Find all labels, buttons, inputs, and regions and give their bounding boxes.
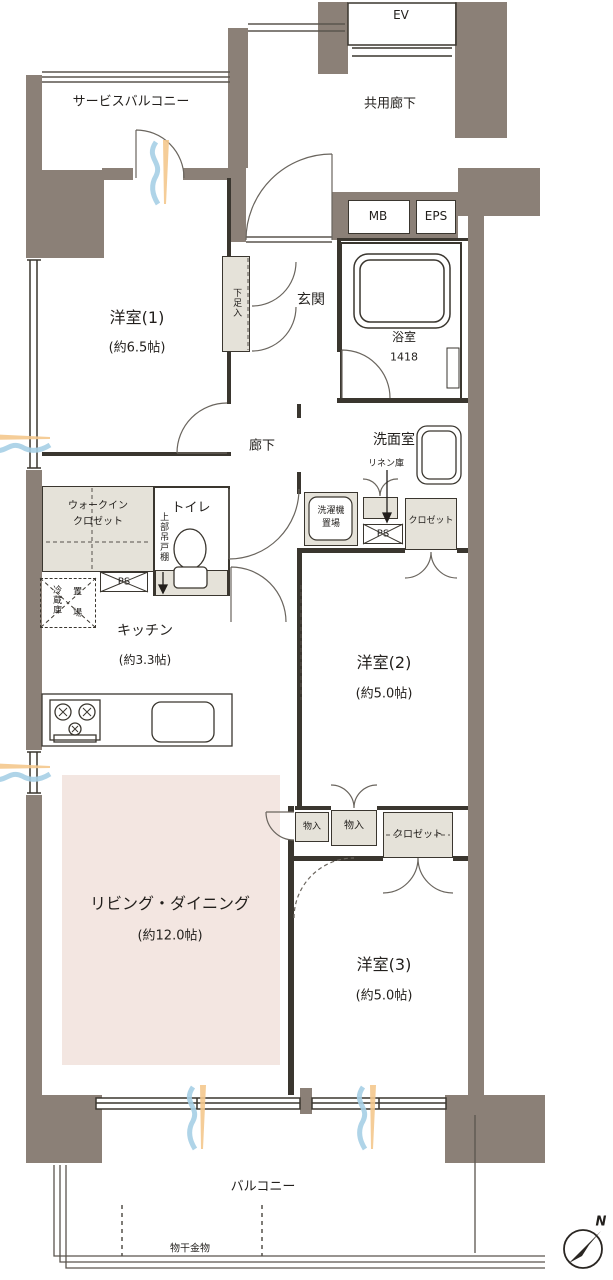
- kitchen-label: キッチン: [117, 623, 173, 639]
- washer-label-1: 洗濯機: [317, 506, 344, 516]
- partition-wall: [297, 550, 302, 808]
- walk-in-closet: [42, 486, 154, 572]
- partition-wall: [42, 452, 231, 456]
- wall: [318, 2, 348, 74]
- washroom-closet-label: クロゼット: [408, 516, 453, 526]
- wall: [26, 170, 104, 258]
- compass-icon: [564, 1230, 602, 1268]
- ev-label: EV: [393, 9, 409, 23]
- partition-wall: [297, 472, 301, 494]
- western2-size: (約5.0帖): [356, 688, 413, 703]
- washer-label-2: 置場: [322, 519, 340, 529]
- upper-cabinet-band: [155, 570, 228, 596]
- wall: [455, 2, 507, 138]
- balcony-label: バルコニー: [231, 1181, 296, 1196]
- fridge-space: [40, 578, 96, 628]
- bathroom-label: 浴室: [392, 331, 416, 345]
- living-dining-label: リビング・ダイニング: [90, 895, 250, 913]
- window-upper-left: [27, 258, 41, 470]
- shoe-cabinet-label: 下足入: [231, 288, 241, 318]
- linen-storage: [363, 497, 398, 519]
- partition-wall: [457, 548, 468, 553]
- living-dining-area: [62, 775, 280, 1065]
- western3-label: 洋室(3): [357, 956, 412, 974]
- entrance-sill: [246, 237, 332, 242]
- western1-label: 洋室(1): [110, 309, 165, 327]
- wind-icon: [0, 763, 50, 780]
- wall: [228, 28, 248, 168]
- partition-wall: [297, 404, 301, 418]
- balcony-sliding-doors: [96, 1098, 446, 1109]
- wall: [26, 795, 42, 1095]
- wall: [183, 168, 232, 180]
- fridge-label-1: 冷蔵庫: [51, 585, 61, 615]
- storage-b-label: 物入: [344, 820, 364, 832]
- ps-kitchen-label: PS: [118, 576, 130, 588]
- shared-corridor-label: 共用廊下: [364, 98, 416, 113]
- wall: [26, 75, 42, 170]
- wall: [26, 1095, 102, 1163]
- wall: [445, 1095, 545, 1163]
- drying-hardware-label: 物干金物: [170, 1243, 210, 1255]
- wind-icon: [189, 1085, 206, 1149]
- mb-label: MB: [369, 210, 388, 224]
- wall: [468, 216, 484, 1105]
- wic-label-2: クロゼット: [73, 516, 123, 528]
- wic-label-1: ウォークイン: [68, 500, 128, 512]
- bedroom3-closet-label: クロゼット: [393, 829, 443, 841]
- washroom-label: 洗面室: [373, 432, 415, 448]
- kitchen-counter: [42, 694, 232, 746]
- linen-label: リネン庫: [368, 459, 404, 469]
- living-dining-size: (約12.0帖): [137, 930, 202, 945]
- toilet-label: トイレ: [171, 502, 210, 517]
- partition-wall: [288, 856, 383, 861]
- eps-label: EPS: [425, 210, 447, 224]
- partition-wall: [337, 238, 468, 241]
- hallway-label: 廊下: [249, 440, 275, 455]
- floor-plan: EV 共用廊下 サービスバルコニー MB EPS 洋室(1) (約6.5帖) 玄…: [0, 0, 613, 1280]
- storage-a-label: 物入: [303, 822, 321, 832]
- window-lower-left: [27, 750, 41, 795]
- western2-label: 洋室(2): [357, 654, 412, 672]
- ps-washroom-label: PS: [377, 528, 389, 540]
- western3-size: (約5.0帖): [356, 990, 413, 1005]
- wall: [300, 1088, 312, 1114]
- wall: [458, 168, 540, 216]
- western1-size: (約6.5帖): [109, 342, 166, 357]
- wall: [102, 168, 133, 180]
- fridge-label-2: 置 場: [71, 587, 81, 618]
- upper-cabinet-label: 上部吊戸棚: [158, 512, 168, 562]
- bathroom-room: [340, 242, 462, 400]
- partition-wall: [295, 806, 331, 810]
- entrance-label: 玄関: [297, 292, 325, 308]
- kitchen-size: (約3.3帖): [119, 654, 171, 668]
- wind-icon: [0, 434, 50, 451]
- partition-wall: [288, 806, 294, 812]
- wind-icon: [152, 140, 169, 204]
- partition-wall: [288, 840, 294, 1095]
- bathroom-size: 1418: [390, 352, 418, 365]
- wind-icon: [359, 1085, 376, 1149]
- partition-wall: [297, 548, 405, 553]
- partition-wall: [453, 856, 468, 861]
- service-balcony-railing: [42, 72, 230, 82]
- north-label: N: [596, 1216, 607, 1231]
- washbasin: [417, 426, 461, 484]
- service-balcony-label: サービスバルコニー: [73, 96, 190, 111]
- partition-wall: [377, 806, 468, 810]
